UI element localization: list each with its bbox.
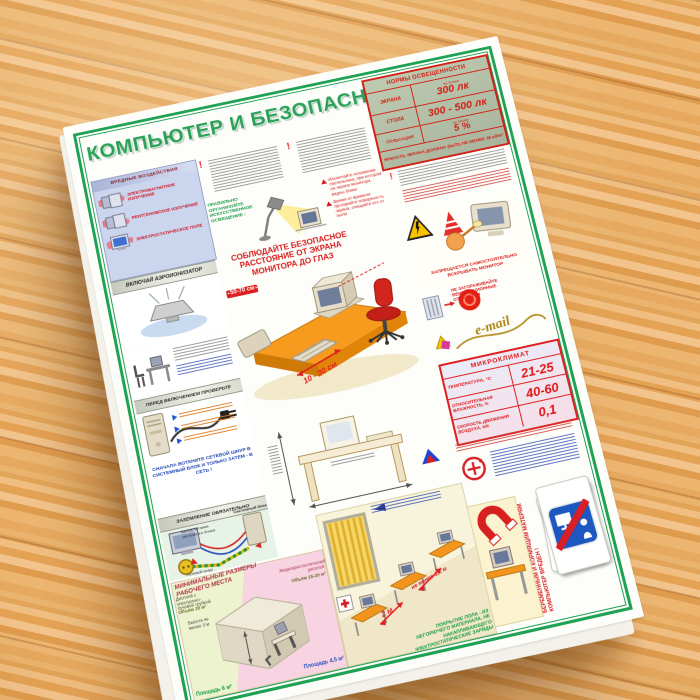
arrow-right-icon (172, 414, 178, 421)
workstation-glyph (127, 346, 176, 393)
triangle-bullet-icon (320, 179, 327, 185)
break-time-icon (458, 453, 490, 484)
electric-warning-icon (401, 212, 433, 241)
exclamation-mark: ! (286, 141, 291, 152)
photo-scene: КОМПЬЮТЕР И БЕЗОПАСНОСТЬ НОРМЫ ОСВЕЩЕННО… (0, 0, 700, 700)
exclamation-mark: ! (389, 171, 394, 181)
poster-stack: КОМПЬЮТЕР И БЕЗОПАСНОСТЬ НОРМЫ ОСВЕЩЕННО… (63, 36, 645, 700)
norms-label-screen: ЭКРАНА (380, 96, 402, 106)
microclimate-label-temp: ТЕМПЕРАТУРА, °C (447, 377, 492, 392)
norms-label-pulsation: ПУЛЬСАЦИЯ (386, 134, 414, 144)
no-computer-for-pregnant-sign (545, 498, 600, 553)
arrow-right-icon (174, 426, 180, 433)
poster-content: КОМПЬЮТЕР И БЕЗОПАСНОСТЬ НОРМЫ ОСВЕЩЕННО… (82, 54, 623, 700)
harmful-item-3: ЭЛЕКТРОСТАТИЧЕСКОЕ ПОЛЕ (136, 222, 206, 241)
exclamation-mark: ! (198, 160, 203, 171)
norms-value-pulsation: 5 % (453, 121, 472, 134)
norms-label-desk: СТОЛА (386, 116, 405, 125)
triangle-bullet-icon (325, 201, 332, 207)
horseshoe-magnet-icon (473, 502, 517, 546)
fineprint-lines (296, 127, 372, 173)
fineprint-lines (208, 146, 284, 192)
norms-value-screen: 300 лк (436, 81, 470, 98)
arrow-right-icon (177, 437, 183, 444)
crt-front-icon (105, 231, 135, 255)
